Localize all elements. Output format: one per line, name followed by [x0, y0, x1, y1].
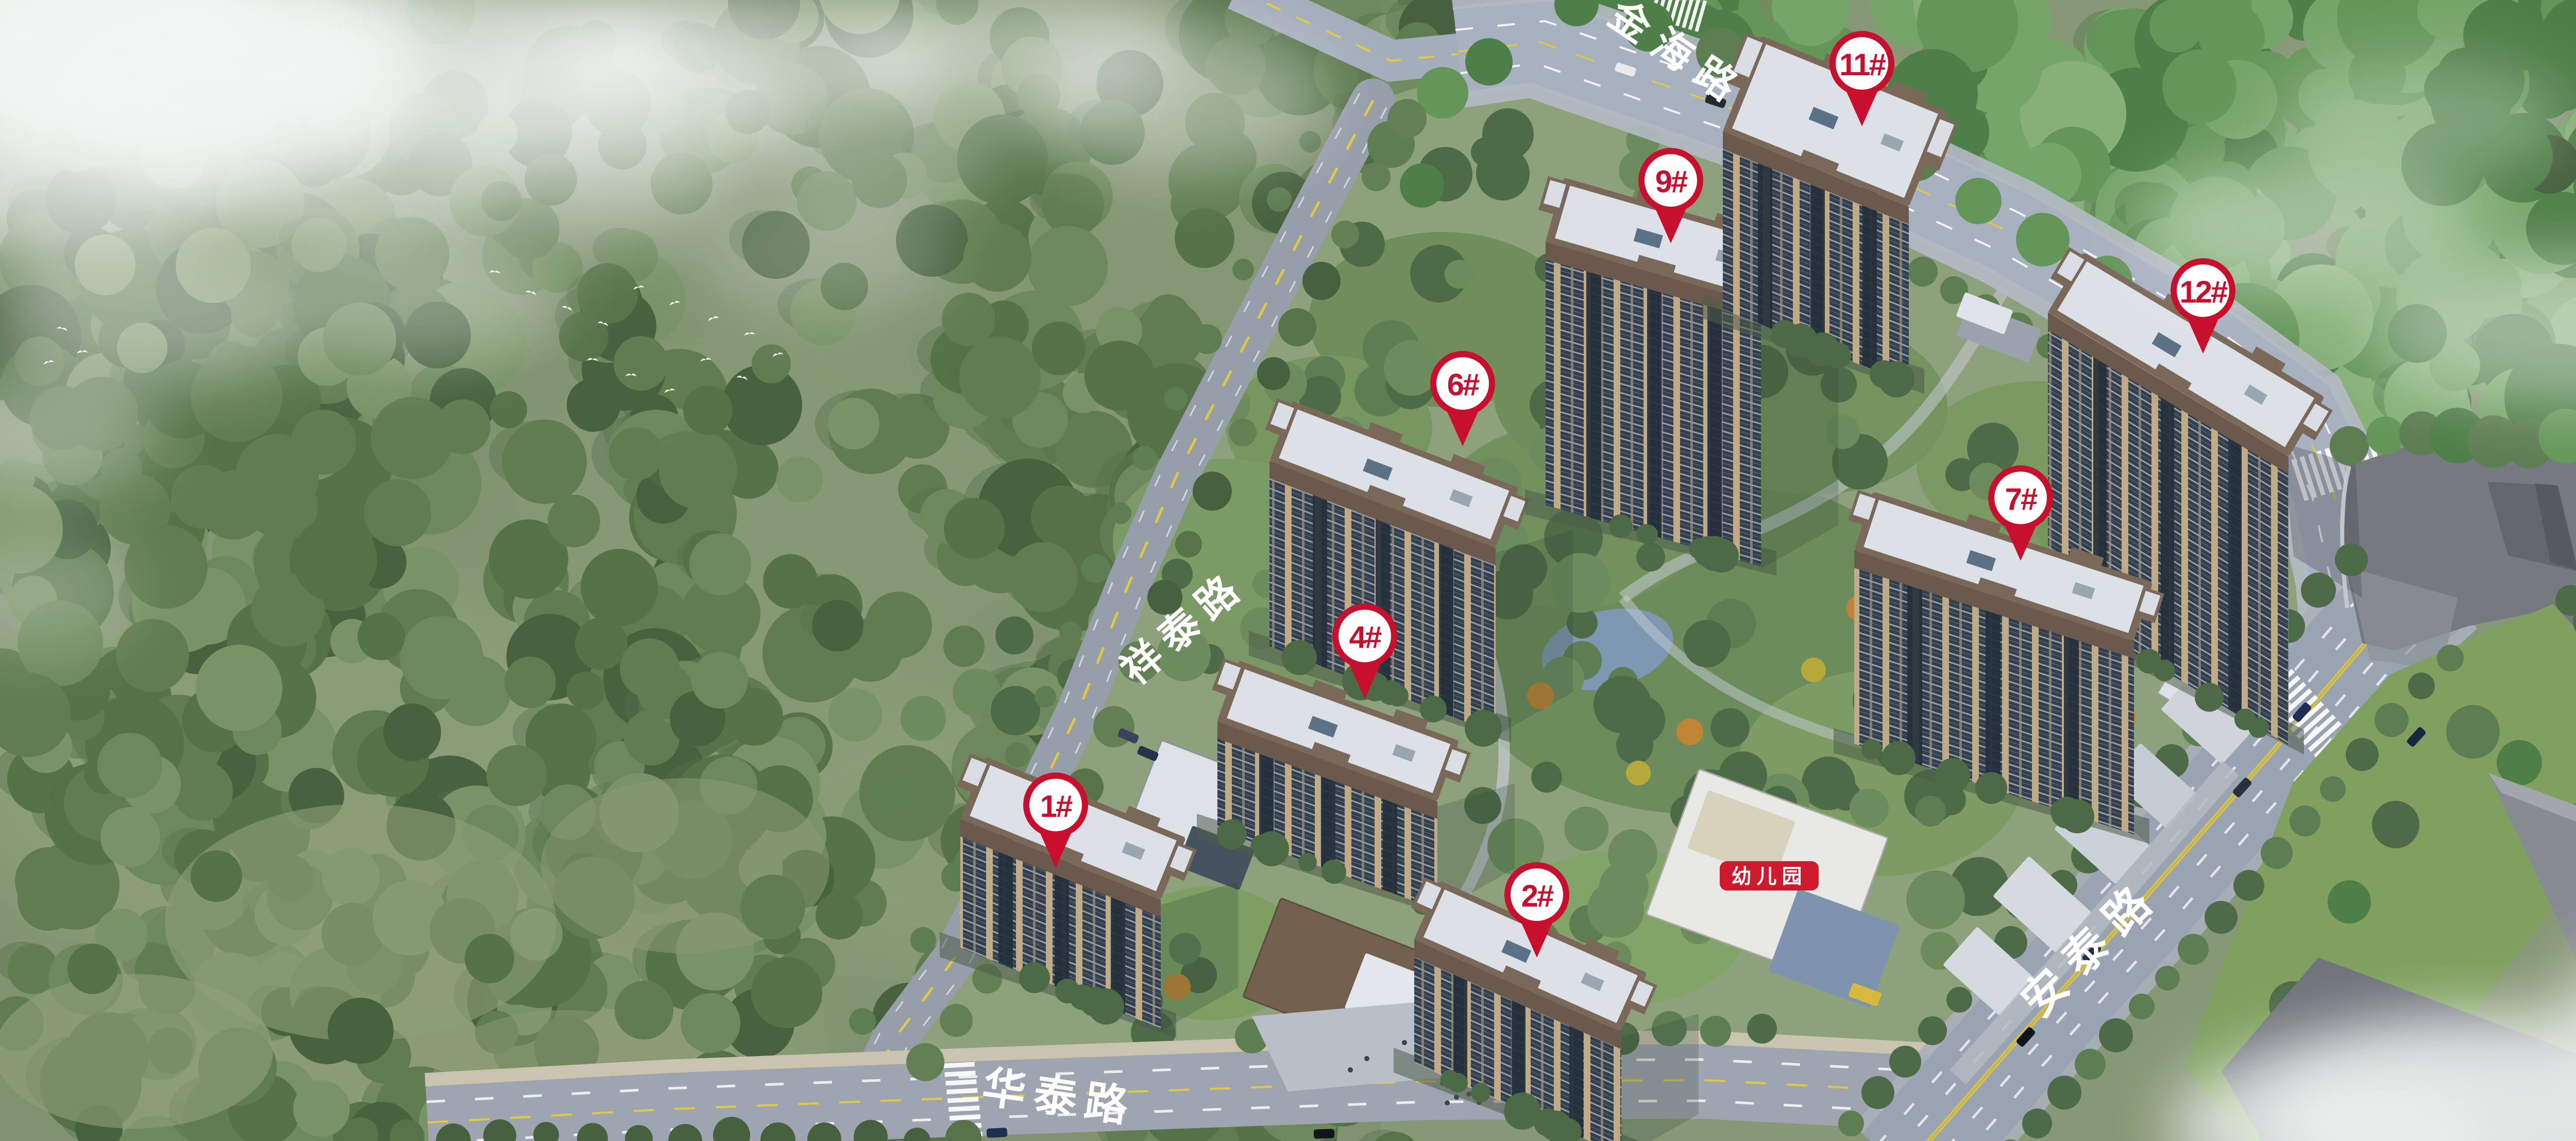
svg-text:4#: 4# [1349, 620, 1382, 655]
svg-text:11#: 11# [1839, 47, 1886, 82]
svg-text:1#: 1# [1040, 789, 1073, 824]
svg-text:12#: 12# [2179, 275, 2228, 309]
svg-text:幼儿园: 幼儿园 [1731, 866, 1807, 888]
svg-text:6#: 6# [1447, 367, 1480, 402]
svg-text:7#: 7# [2005, 482, 2038, 516]
svg-text:2#: 2# [1521, 879, 1554, 913]
svg-text:9#: 9# [1655, 164, 1688, 199]
